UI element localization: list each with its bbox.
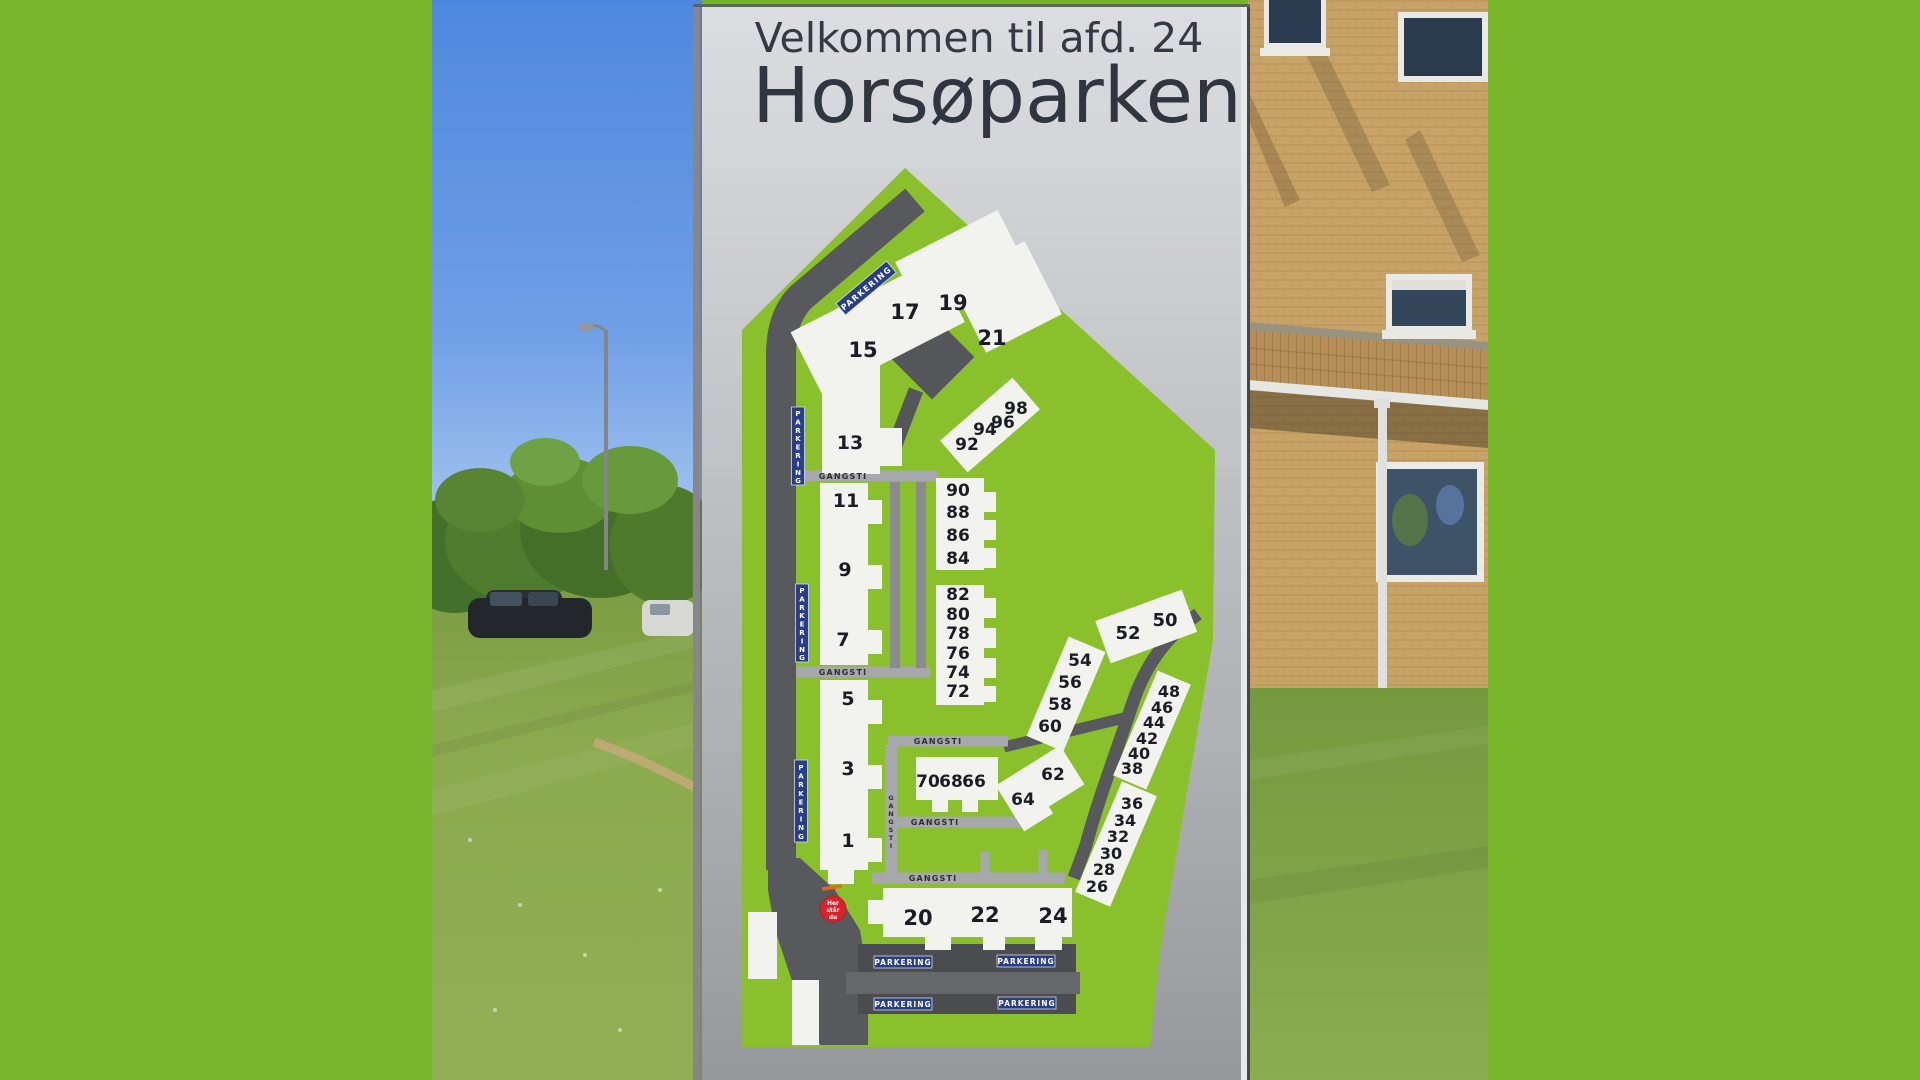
- gangsti-label: GANGSTI: [911, 818, 960, 827]
- building-17-label: 17: [890, 300, 919, 324]
- window-top-left: [1260, 0, 1330, 56]
- window-lower: [1376, 462, 1484, 582]
- scene: Velkommen til afd. 24 Horsøparken: [0, 0, 1920, 1080]
- building-1-5: [820, 680, 882, 884]
- parkering-badge-vertical-1: PARKERING: [792, 407, 805, 485]
- building-20-label: 20: [903, 906, 932, 930]
- sign-edge-line: [700, 7, 702, 1080]
- white-car: [642, 600, 694, 636]
- building-66-label: 66: [962, 772, 986, 792]
- svg-text:står: står: [827, 907, 840, 914]
- building-74-label: 74: [946, 663, 970, 683]
- building-13-label: 13: [837, 432, 863, 454]
- svg-text:PARKERING: PARKERING: [874, 958, 931, 967]
- gangsti-label: GANGSTI: [914, 737, 963, 746]
- building-98-label: 98: [1004, 399, 1028, 419]
- building-70-label: 70: [916, 772, 940, 792]
- building-60-label: 60: [1038, 717, 1062, 737]
- gangsti-label-vertical: GANGSTI: [888, 794, 894, 850]
- garage-block: [792, 980, 819, 1045]
- building-84-label: 84: [946, 549, 970, 569]
- sign-top-edge: [693, 4, 1250, 7]
- sign-left-edge: [693, 7, 700, 1080]
- map-sign: Velkommen til afd. 24 Horsøparken: [693, 4, 1250, 1080]
- svg-text:PARKERING: PARKERING: [874, 1000, 931, 1009]
- building-50-label: 50: [1152, 610, 1177, 631]
- gangsti-label: GANGSTI: [819, 668, 868, 677]
- building-88-label: 88: [946, 503, 970, 523]
- building-90-label: 90: [946, 481, 970, 501]
- building-7-label: 7: [836, 629, 849, 651]
- parkering-badge-vertical-2: PARKERING: [796, 584, 809, 662]
- green-border-right: [1488, 0, 1920, 1080]
- sign-right-edge: [1241, 7, 1247, 1080]
- building-21-label: 21: [977, 326, 1006, 350]
- building-72-label: 72: [946, 682, 970, 702]
- building-38-label: 38: [1121, 759, 1143, 778]
- building-11-label: 11: [833, 490, 859, 512]
- building-19-label: 19: [938, 291, 967, 315]
- svg-text:PARKERING: PARKERING: [997, 957, 1054, 966]
- window-middle: [1382, 274, 1476, 339]
- building-82-label: 82: [946, 585, 970, 605]
- svg-text:du: du: [829, 915, 837, 921]
- building-64-label: 64: [1011, 790, 1035, 810]
- building-54-label: 54: [1068, 651, 1092, 671]
- svg-text:Her: Her: [827, 901, 839, 907]
- window-top-right: [1398, 12, 1488, 82]
- building-3-label: 3: [841, 758, 854, 780]
- building-5-label: 5: [841, 688, 854, 710]
- svg-text:PARKERING: PARKERING: [998, 999, 1055, 1008]
- building-56-label: 56: [1058, 673, 1082, 693]
- building-62-label: 62: [1041, 765, 1065, 785]
- building-52-label: 52: [1115, 623, 1140, 644]
- building-26-label: 26: [1086, 877, 1108, 896]
- building-86-label: 86: [946, 526, 970, 546]
- building-68-label: 68: [939, 772, 963, 792]
- sign-right-edge-dark: [1247, 7, 1250, 1080]
- building-15-label: 15: [848, 338, 877, 362]
- downpipe: [1378, 406, 1387, 690]
- parking-lane: [846, 972, 1080, 994]
- svg-text:PARKERING: PARKERING: [795, 410, 801, 485]
- svg-text:PARKERING: PARKERING: [799, 587, 805, 662]
- building-1-label: 1: [841, 830, 854, 852]
- building-80-label: 80: [946, 605, 970, 625]
- green-border-left: [0, 0, 432, 1080]
- building-9-label: 9: [838, 559, 851, 581]
- brick-building: [1248, 0, 1488, 692]
- garage-block: [748, 912, 777, 979]
- building-76-label: 76: [946, 644, 970, 664]
- building-22-label: 22: [970, 903, 999, 927]
- sign-subtitle: Horsøparken: [752, 52, 1242, 141]
- building-78-label: 78: [946, 624, 970, 644]
- gangsti-label: GANGSTI: [819, 472, 868, 481]
- photo-of-map-sign: Velkommen til afd. 24 Horsøparken: [0, 0, 1920, 1080]
- building-58-label: 58: [1048, 695, 1072, 715]
- gangsti-label: GANGSTI: [909, 874, 958, 883]
- svg-text:PARKERING: PARKERING: [798, 764, 804, 841]
- building-24-label: 24: [1038, 904, 1067, 928]
- parkering-badge-vertical-3: PARKERING: [795, 760, 808, 842]
